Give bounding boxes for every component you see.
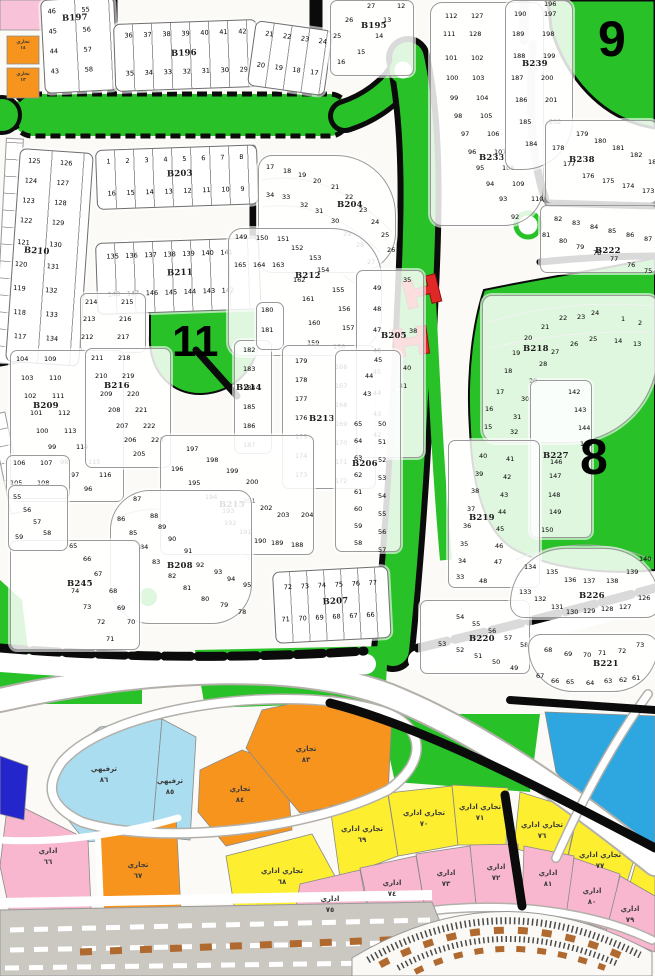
district-number: 8	[580, 432, 608, 482]
district-number: 11	[172, 320, 219, 364]
zone-ad-81	[522, 846, 574, 914]
district-number: 9	[598, 14, 626, 64]
zone-comm-14	[7, 36, 39, 64]
zone-comm-13	[7, 68, 39, 98]
zone-bank-navy	[0, 756, 28, 820]
green-belt	[14, 94, 348, 136]
zone-ca-71	[452, 785, 508, 845]
zone-pink-top-block	[0, 0, 108, 30]
cadastral-map: B1974655455644574358B1963637383940414235…	[0, 0, 655, 976]
green-sliver	[430, 300, 446, 560]
green-district-8	[469, 258, 655, 572]
green-small-blob	[139, 588, 157, 606]
map-base-layer	[0, 0, 655, 976]
zone-ca-70	[388, 786, 458, 856]
green-dot-left	[0, 97, 20, 133]
